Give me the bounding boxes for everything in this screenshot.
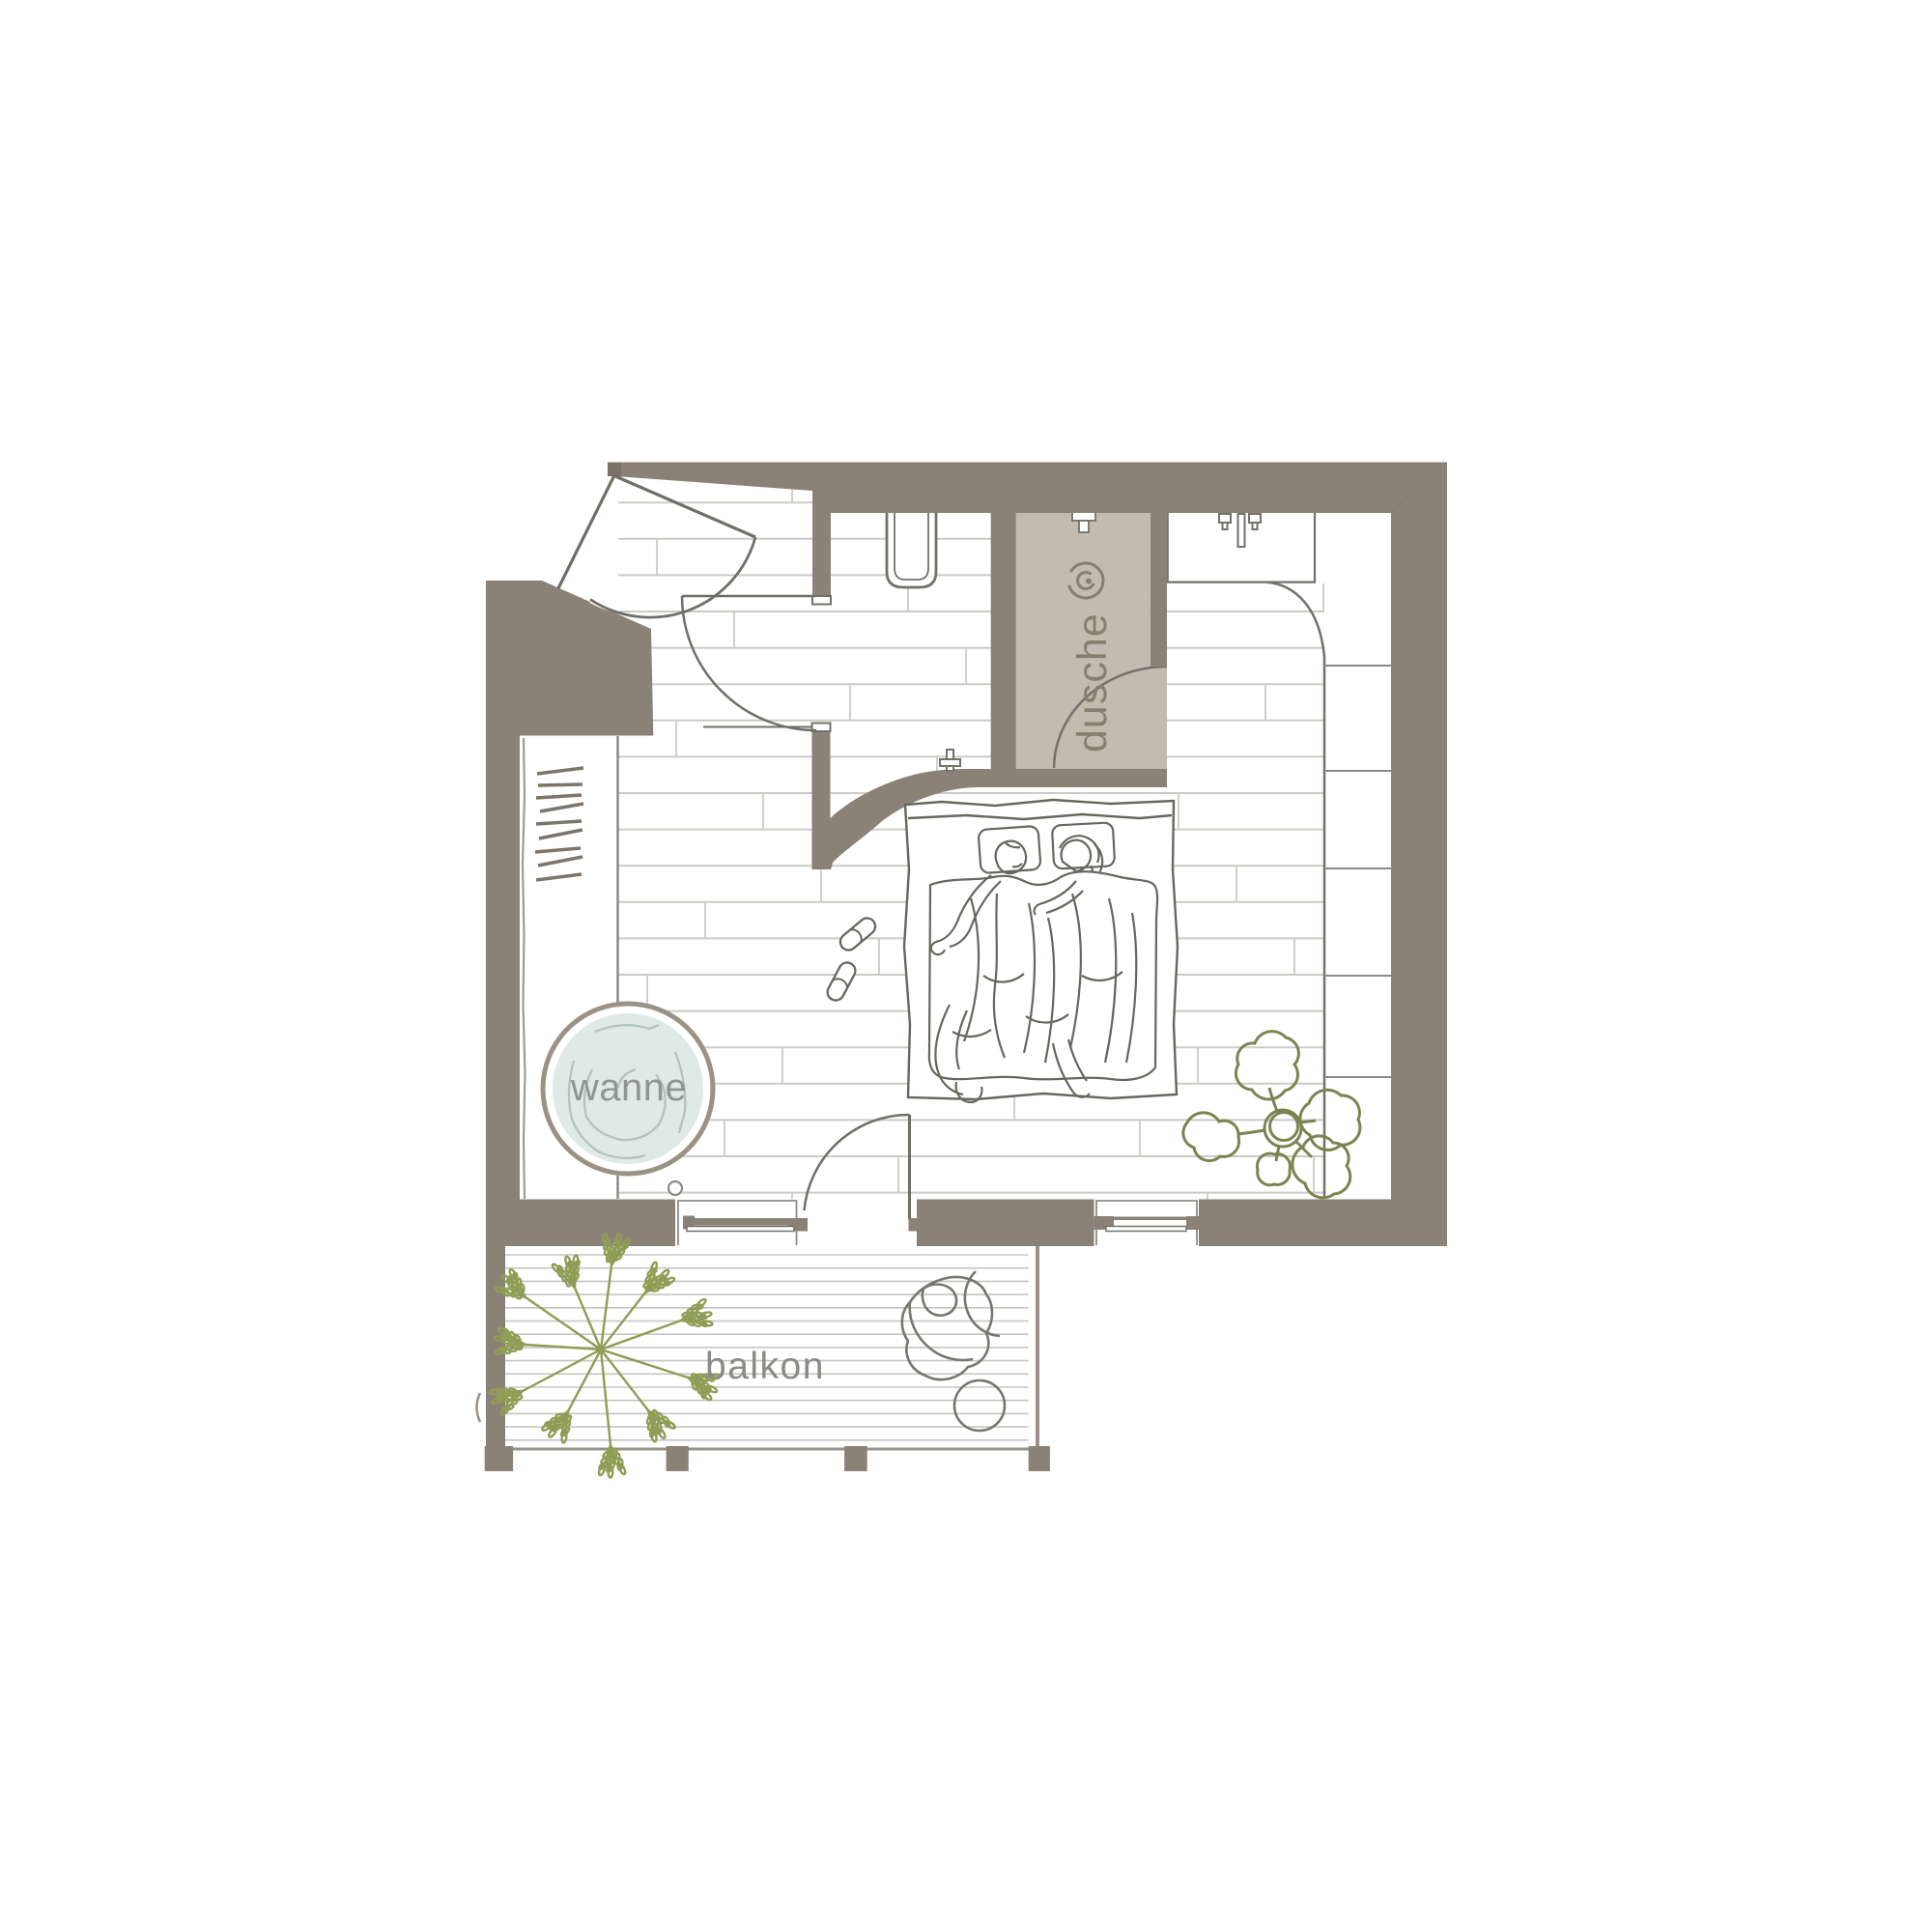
svg-text:wanne: wanne [570, 1066, 687, 1109]
svg-text:dusche: dusche [1069, 612, 1116, 753]
svg-text:balkon: balkon [705, 1346, 825, 1387]
